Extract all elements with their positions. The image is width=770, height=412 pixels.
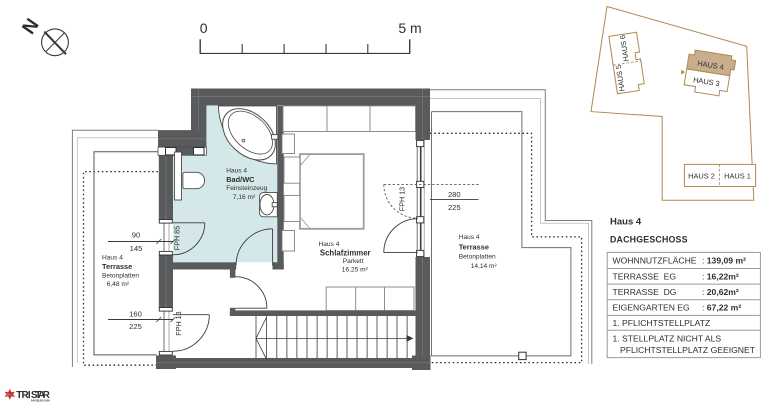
svg-text:Terrasse: Terrasse [102, 262, 132, 271]
svg-text:Betonplatten: Betonplatten [459, 254, 496, 261]
svg-text:1. STELLPLATZ NICHT ALS: 1. STELLPLATZ NICHT ALS [613, 333, 722, 343]
svg-text:TERRASSE DG: TERRASSE DG [613, 287, 677, 297]
svg-text:TERRASSE EG: TERRASSE EG [613, 271, 677, 281]
svg-text:225: 225 [448, 203, 461, 212]
svg-text:Parkett: Parkett [343, 258, 364, 265]
svg-text:WOHNNUTZFLÄCHE: WOHNNUTZFLÄCHE [613, 256, 697, 266]
svg-text:PFLICHTSTELLPLATZ GEEIGNET: PFLICHTSTELLPLATZ GEEIGNET [620, 345, 756, 355]
svg-text:Haus 4: Haus 4 [319, 241, 340, 248]
svg-text:EIGENGARTEN EG: EIGENGARTEN EG [613, 303, 691, 313]
svg-text:Terrasse: Terrasse [459, 242, 489, 251]
svg-text:Feinsteinzeug: Feinsteinzeug [226, 185, 267, 192]
svg-text:160: 160 [129, 310, 142, 319]
svg-text:Haus 4: Haus 4 [102, 255, 123, 262]
svg-text:FPH 85: FPH 85 [173, 226, 182, 250]
svg-text:: 20,62m²: : 20,62m² [702, 287, 739, 297]
svg-text:Haus 4: Haus 4 [459, 234, 480, 241]
svg-text:Bad/WC: Bad/WC [226, 175, 255, 184]
svg-text:6,48 m²: 6,48 m² [107, 281, 130, 288]
svg-text:FPH 13: FPH 13 [398, 187, 407, 211]
svg-text:90: 90 [132, 230, 140, 239]
svg-text:5 m: 5 m [398, 20, 421, 36]
svg-text:: 16,22m²: : 16,22m² [702, 271, 739, 281]
svg-text:16,25 m²: 16,25 m² [342, 267, 369, 274]
svg-text:: 139,09 m²: : 139,09 m² [702, 256, 746, 266]
svg-text:FPH 13: FPH 13 [174, 311, 183, 335]
svg-text:Schlafzimmer: Schlafzimmer [320, 248, 371, 257]
svg-text:IMMOBILIEN GMBH: IMMOBILIEN GMBH [31, 398, 50, 402]
svg-text:HAUS 1: HAUS 1 [724, 172, 751, 181]
svg-text:1. PFLICHTSTELLPLATZ: 1. PFLICHTSTELLPLATZ [613, 318, 711, 328]
svg-text:: 67,22 m²: : 67,22 m² [702, 303, 741, 313]
svg-text:HAUS 2: HAUS 2 [688, 172, 715, 181]
svg-text:145: 145 [130, 244, 143, 253]
svg-text:TRI: TRI [16, 390, 31, 401]
svg-text:7,16 m²: 7,16 m² [233, 194, 256, 201]
svg-text:280: 280 [448, 190, 461, 199]
svg-text:Haus 4: Haus 4 [226, 168, 247, 175]
svg-text:0: 0 [200, 20, 208, 36]
svg-text:Betonplatten: Betonplatten [102, 272, 139, 279]
svg-text:225: 225 [129, 322, 142, 331]
svg-text:Haus 4: Haus 4 [610, 217, 642, 228]
svg-text:14,14 m²: 14,14 m² [471, 263, 498, 270]
svg-text:DACHGESCHOSS: DACHGESCHOSS [610, 235, 688, 245]
